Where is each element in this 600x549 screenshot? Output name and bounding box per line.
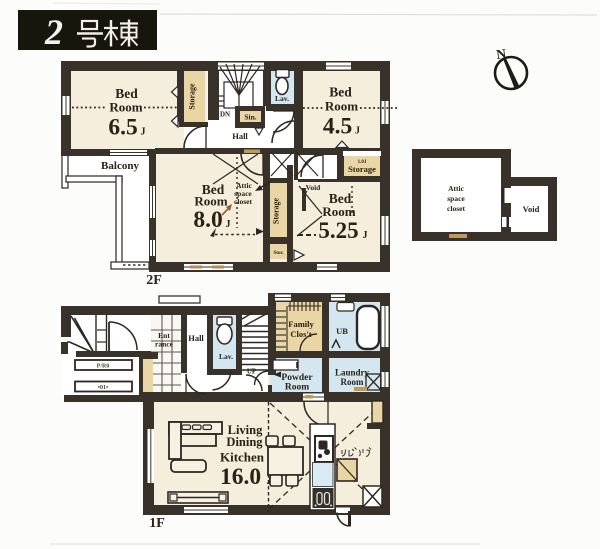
svg-text:J: J xyxy=(141,127,146,138)
svg-text:J: J xyxy=(363,230,368,241)
svg-text:2: 2 xyxy=(44,12,63,52)
svg-text:closet: closet xyxy=(234,197,252,206)
svg-text:Family: Family xyxy=(288,319,314,329)
svg-text:Kitchen: Kitchen xyxy=(220,450,265,465)
svg-text:Attic: Attic xyxy=(448,184,464,193)
svg-text:Storage: Storage xyxy=(348,164,376,174)
svg-text:Storage: Storage xyxy=(188,83,197,110)
svg-text:5.25: 5.25 xyxy=(318,218,358,243)
svg-text:•01•: •01• xyxy=(98,385,108,391)
svg-text:Clos't: Clos't xyxy=(290,329,311,339)
svg-text:Void: Void xyxy=(523,204,540,214)
svg-text:DN: DN xyxy=(220,111,230,119)
svg-text:Dining: Dining xyxy=(226,435,263,449)
svg-text:Lav.: Lav. xyxy=(219,352,233,361)
svg-text:16.0: 16.0 xyxy=(220,464,261,490)
svg-text:J: J xyxy=(267,476,272,487)
svg-text:Balcony: Balcony xyxy=(101,160,139,172)
svg-text:Room: Room xyxy=(325,99,358,114)
svg-text:Powder: Powder xyxy=(281,373,313,383)
svg-text:Stor.: Stor. xyxy=(274,251,285,256)
svg-text:Room: Room xyxy=(109,100,142,115)
svg-text:Bed: Bed xyxy=(329,85,352,100)
svg-text:Room: Room xyxy=(285,383,309,393)
svg-text:Lav.: Lav. xyxy=(275,94,289,103)
svg-text:J: J xyxy=(226,219,231,230)
svg-text:Hall: Hall xyxy=(232,131,248,141)
svg-text:2F: 2F xyxy=(146,273,162,288)
svg-text:P/R0: P/R0 xyxy=(97,364,110,370)
svg-text:Hall: Hall xyxy=(188,333,204,343)
svg-text:closet: closet xyxy=(447,204,465,213)
svg-text:Room: Room xyxy=(341,377,364,387)
svg-text:UP: UP xyxy=(247,368,257,376)
svg-text:rance: rance xyxy=(155,340,174,349)
svg-text:Storage: Storage xyxy=(272,197,281,224)
svg-text:space: space xyxy=(447,194,465,203)
svg-text:1.0J: 1.0J xyxy=(358,160,367,165)
svg-text:Sin.: Sin. xyxy=(244,113,256,122)
svg-text:Laundry: Laundry xyxy=(335,368,370,378)
svg-text:J: J xyxy=(355,126,360,137)
svg-text:6.5: 6.5 xyxy=(108,115,137,141)
svg-text:8.0: 8.0 xyxy=(193,207,222,233)
svg-text:Void: Void xyxy=(306,183,322,192)
svg-text:4.5: 4.5 xyxy=(323,114,352,140)
svg-text:1F: 1F xyxy=(149,516,165,531)
svg-text:UB: UB xyxy=(336,326,348,336)
svg-text:Room: Room xyxy=(322,204,355,219)
